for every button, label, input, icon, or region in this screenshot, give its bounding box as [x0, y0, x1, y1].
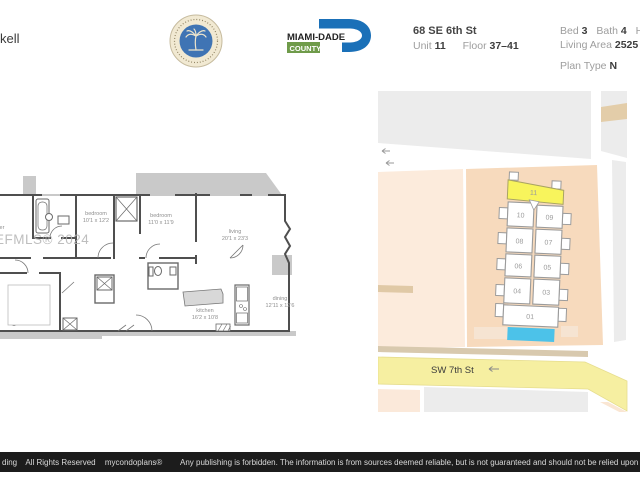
half-label: Half	[636, 25, 640, 37]
room-label-bedroom2: bedroom	[150, 213, 172, 219]
floor-label: Floor	[463, 40, 487, 52]
unit-label-05: 05	[543, 265, 551, 272]
city-of-miami-seal-icon	[168, 13, 224, 69]
room-label-living: living	[229, 229, 242, 235]
bath-value: 4	[621, 25, 627, 37]
unit-label-03: 03	[542, 289, 550, 296]
unit-label-04: 04	[513, 288, 521, 295]
pool-shape	[507, 327, 555, 342]
logo-county-text: COUNTY	[290, 44, 322, 53]
bed-label: Bed	[560, 25, 579, 37]
bed-bath-line: Bed 3 Bath 4 Half 1	[560, 25, 640, 37]
unit-label-08: 08	[515, 238, 523, 245]
miami-dade-county-logo: MIAMI-DADE COUNTY	[287, 16, 379, 56]
footer-brand: mycondoplans®	[105, 458, 162, 467]
unit-label-09: 09	[545, 215, 553, 222]
plan-type-label: Plan Type	[560, 60, 607, 72]
room-dims-bedroom2: 11'0 x 11'9	[148, 220, 173, 226]
room-label-dining: dining	[273, 296, 288, 302]
mls-watermark: EFMLS® 2024	[0, 232, 89, 247]
unit-label-11: 11	[530, 190, 538, 197]
plan-type-value: N	[609, 60, 617, 72]
room-label-master: master	[0, 225, 5, 231]
bath-label: Bath	[596, 25, 618, 37]
specs-block: Bed 3 Bath 4 Half 1 Living Area 2525 sf …	[560, 25, 640, 72]
unit-label-06: 06	[514, 263, 522, 270]
footer-bar: ding All Rights Reserved mycondoplans® A…	[0, 452, 640, 472]
room-dims-bedroom1: 10'1 x 12'2	[83, 218, 109, 224]
unit-label-10: 10	[517, 212, 525, 219]
room-dims-dining: 12'11 x 12'6	[266, 303, 295, 309]
unit-value: 11	[435, 40, 446, 52]
unit-label: Unit	[413, 40, 432, 52]
room-dims-living: 20'1 x 23'3	[222, 236, 248, 242]
logo-name-text: MIAMI-DADE	[287, 32, 345, 43]
footer-disclaimer: Any publishing is forbidden. The informa…	[180, 458, 640, 467]
living-area-label: Living Area	[560, 39, 612, 51]
compass-icon	[382, 149, 394, 166]
street-label: SW 7th St	[431, 365, 474, 376]
unit-floor-line: Unit 11 Floor 37–41	[413, 40, 519, 52]
unit-label-01: 01	[526, 314, 534, 321]
room-dims-kitchen: 16'2 x 10'8	[192, 315, 218, 321]
room-label-kitchen: kitchen	[196, 308, 213, 314]
pool-deck-right	[561, 326, 578, 337]
address: 68 SE 6th St	[413, 25, 519, 37]
footer-left-fragment: ding	[2, 458, 17, 467]
bed-value: 3	[582, 25, 588, 37]
site-key-plan: 11 10 09 08 07 06 05 04 03 01 SW 7th St	[378, 90, 628, 412]
room-label-bedroom1: bedroom	[85, 211, 107, 217]
living-area-value: 2525 sf 2	[615, 39, 640, 51]
pool-deck-left	[474, 327, 508, 339]
floor-value: 37–41	[490, 40, 519, 52]
plan-type-line: Plan Type N	[560, 60, 640, 72]
page-title-fragment: kell	[0, 31, 20, 46]
floorplan-sheet: { "header": { "title_fragment": "kell", …	[0, 0, 640, 480]
address-block: 68 SE 6th St Unit 11 Floor 37–41	[413, 25, 519, 52]
footer-left: ding All Rights Reserved mycondoplans®	[2, 458, 162, 467]
floor-plan: master bedroom 10'1 x 12'2 bedroom 11'0 …	[0, 163, 312, 363]
living-area-line: Living Area 2525 sf 2	[560, 39, 640, 51]
footer-rights: All Rights Reserved	[25, 458, 95, 467]
unit-label-07: 07	[544, 240, 552, 247]
